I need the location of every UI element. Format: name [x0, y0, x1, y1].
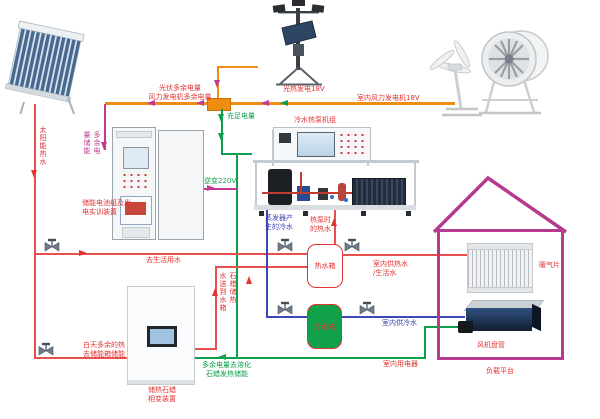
label-solar-thermal-gen: 光热发电18V [283, 85, 325, 94]
battery-cabinet [158, 130, 204, 240]
heat-pump-screen [297, 132, 335, 157]
radiator [467, 243, 533, 293]
label-radiator: 暖气片 [539, 261, 560, 270]
valve-solar-domestic [44, 238, 60, 255]
valve-cold-tank-out [359, 301, 375, 318]
label-day-surplus-heat: 白天多余的热 去储能箱储能 [83, 341, 125, 358]
power-line-tracker-horizontal [217, 66, 258, 68]
pipe-paraffin-out-horizontal [195, 348, 217, 350]
label-indoor-wind-gen: 室内风力发电机18V [357, 94, 420, 103]
label-sufficient-power: 充足电量 [227, 112, 255, 121]
valve-cold-tank-in [277, 301, 293, 318]
arrow-inverter-right [207, 185, 215, 191]
label-surplus-storage: 多余电 量储能 [82, 131, 101, 155]
arrow-solar-down [31, 170, 37, 178]
label-battery-rig: 储能电池组及发 电实训装置 [82, 199, 131, 216]
pipe-paraffin-riser [215, 266, 217, 350]
cold-water-tank: 冷水箱 [307, 304, 342, 349]
charged-line-main-vertical [236, 153, 238, 359]
label-wind-surplus: 风力发电机多余电量 [148, 93, 212, 102]
heat-pump-unit [251, 124, 421, 216]
label-inverter: 逆变220V [204, 177, 236, 186]
pipe-paraffin-to-hot-tank [215, 266, 308, 268]
house-roof [428, 172, 572, 236]
arrow-tracker-down [214, 80, 220, 88]
wind-generator-rig [424, 12, 556, 118]
valve-hot-tank-out [344, 238, 360, 255]
arrow-domestic-right [79, 250, 87, 256]
cold-water-tank-label: 冷水箱 [314, 322, 335, 332]
inverter-line [199, 188, 238, 190]
hot-water-tank: 热水箱 [307, 244, 343, 288]
fan-coil-motor [458, 321, 473, 333]
arrow-heatpump-hot-up [331, 218, 337, 226]
arrow-junction-down-2 [218, 133, 224, 141]
label-fan-coil: 风机盘管 [477, 341, 505, 350]
compressor [268, 169, 292, 205]
valve-hot-tank-in [277, 238, 293, 255]
fan-coil-unit [458, 298, 542, 338]
paraffin-phase-change-cabinet [127, 286, 195, 385]
charged-line-bottom-bus [193, 357, 426, 359]
charged-line-house-riser [424, 326, 426, 359]
arrow-battery-down [101, 142, 107, 150]
label-solar-hot-water: 太阳能热水 [38, 126, 47, 166]
label-load-platform: 负载平台 [486, 367, 514, 376]
label-to-domestic: 去生活用水 [146, 256, 181, 265]
solar-collector [4, 20, 86, 114]
label-pv-surplus: 光伏多余电量 [148, 84, 212, 93]
valve-solar-paraffin [38, 342, 54, 359]
heat-pump-control-panel [273, 127, 371, 161]
solar-tracker [270, 0, 328, 88]
label-indoor-cold: 室内供冷水 [382, 319, 417, 328]
energy-system-diagram: 热水箱 冷水箱 光伏多余电量 风力发电机多余电量 多余电 量储能 充足电量 光热… [0, 0, 600, 419]
arrow-melt-left [218, 354, 226, 360]
hot-water-tank-label: 热水箱 [315, 261, 336, 271]
label-indoor-appliances: 室内用电器 [383, 360, 418, 369]
arrow-charged-left [280, 100, 288, 106]
control-cabinet [112, 127, 156, 240]
label-heat-pump: 冷水热泵机组 [294, 116, 336, 125]
pipe-solar-hot-vertical [34, 104, 36, 359]
label-paraffin-to-tank: 石蜡储热 水送到水箱 [218, 272, 237, 312]
label-evaporator-cold: 蒸发器产 生的冷水 [265, 214, 293, 231]
label-surplus-pv-wind: 光伏多余电量 风力发电机多余电量 [148, 84, 212, 101]
arrow-surplus-left-3 [261, 100, 269, 106]
label-indoor-hot: 室内供热水 /生活水 [373, 260, 408, 277]
label-paraffin-device: 储热石蜡 相变装置 [140, 386, 184, 403]
arrow-junction-down-1 [218, 114, 224, 122]
label-melt-paraffin: 多余电量去溶化 石蜡发热储能 [202, 361, 251, 378]
label-heatpump-hot: 热泵时 的热水 [310, 216, 331, 233]
arrow-tank-feed-up [246, 276, 252, 284]
paraffin-screen [147, 326, 177, 347]
